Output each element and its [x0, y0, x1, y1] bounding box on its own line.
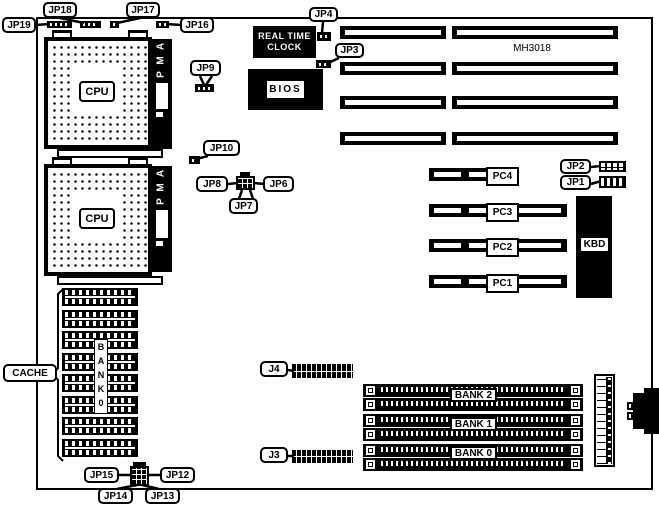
label-jp1: JP1 [560, 175, 591, 190]
label-j4: J4 [260, 361, 288, 377]
label-jp4: JP4 [309, 7, 338, 22]
label-jp9: JP9 [190, 60, 221, 76]
label-jp15: JP15 [84, 467, 119, 483]
motherboard-diagram: CPU A M P CPU A M P REAL TIME CLOC [0, 0, 659, 507]
label-jp18: JP18 [43, 2, 77, 18]
label-j3: J3 [260, 447, 288, 463]
label-jp17: JP17 [126, 2, 160, 18]
label-jp12: JP12 [160, 467, 195, 483]
label-jp2: JP2 [560, 159, 591, 174]
callout-lines [0, 0, 659, 507]
label-jp13: JP13 [145, 488, 180, 504]
label-jp7: JP7 [229, 198, 258, 214]
label-jp14: JP14 [98, 488, 133, 504]
label-kbd: KBD [580, 237, 609, 252]
label-jp10: JP10 [203, 140, 240, 156]
label-jp16: JP16 [180, 17, 214, 33]
label-jp6: JP6 [263, 176, 294, 192]
label-jp19: JP19 [2, 17, 36, 33]
label-jp8: JP8 [196, 176, 228, 192]
label-jp3: JP3 [335, 43, 364, 58]
label-cache: CACHE [3, 364, 57, 382]
